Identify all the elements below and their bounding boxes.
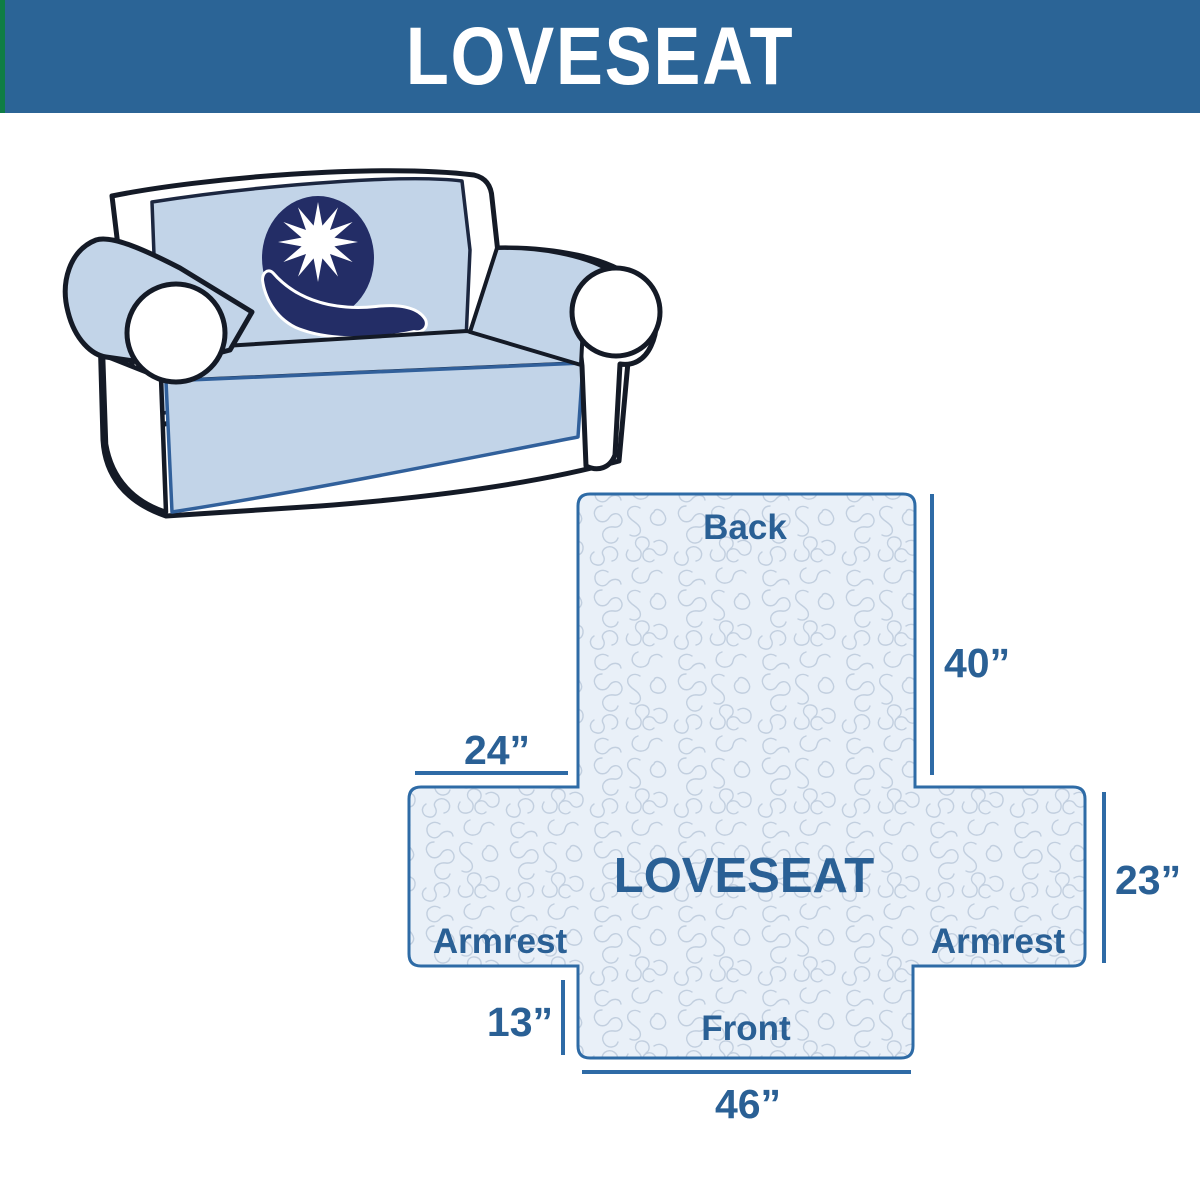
dim-front-side-height: 13”	[487, 999, 553, 1045]
armrest-left-label: Armrest	[433, 922, 568, 961]
sofa-right-arm-roll	[572, 268, 660, 356]
cover-dimensions-diagram: Back LOVESEAT Armrest Armrest Front 40” …	[409, 494, 1181, 1127]
front-label: Front	[701, 1009, 791, 1048]
sofa-left-arm-roll	[127, 284, 225, 382]
loveseat-illustration	[65, 171, 660, 516]
infographic-canvas: Back LOVESEAT Armrest Armrest Front 40” …	[0, 0, 1200, 1200]
dim-front-width: 46”	[715, 1081, 781, 1127]
dim-armrest-top-width: 24”	[464, 727, 530, 773]
back-label: Back	[703, 508, 787, 547]
dim-armrest-side-height: 23”	[1115, 857, 1181, 903]
armrest-right-label: Armrest	[931, 922, 1066, 961]
center-label: LOVESEAT	[614, 849, 875, 903]
dim-back-height: 40”	[944, 640, 1010, 686]
cover-outline-shape	[409, 494, 1085, 1058]
